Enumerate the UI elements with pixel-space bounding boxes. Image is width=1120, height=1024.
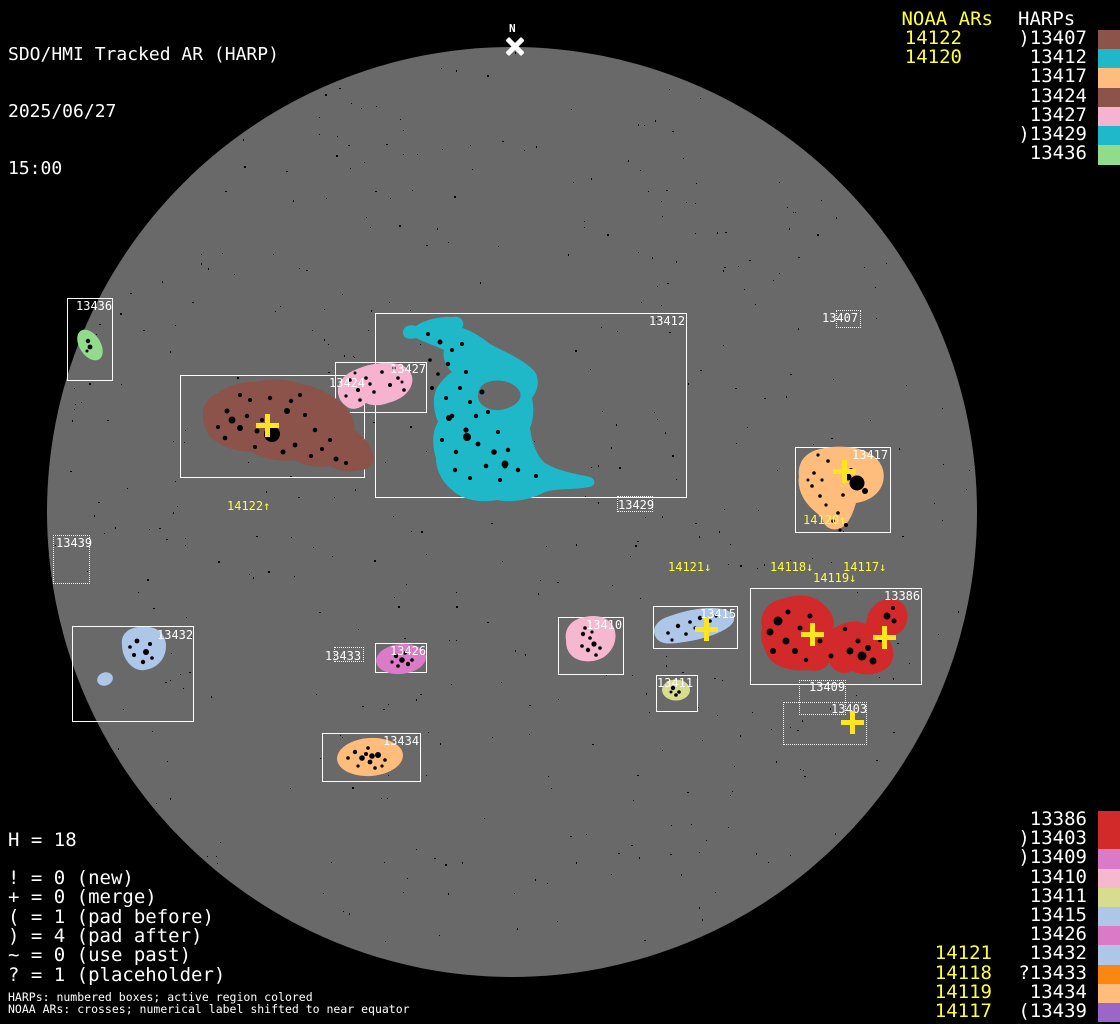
legend-harp-item: )13407 bbox=[1000, 29, 1087, 48]
legend-harp-item: 13436 bbox=[1000, 144, 1087, 163]
legend-color-swatch bbox=[1098, 869, 1120, 888]
legend-color-swatch bbox=[1098, 88, 1120, 107]
noaa-cross bbox=[833, 460, 856, 483]
legend-harp-item: 13410 bbox=[975, 868, 1087, 887]
legend-harp-item: 13424 bbox=[1000, 87, 1087, 106]
legend-harp-item: 13412 bbox=[1000, 48, 1087, 67]
stat-line: ( = 1 (pad before) bbox=[8, 908, 214, 927]
stat-line: ? = 1 (placeholder) bbox=[8, 966, 225, 985]
legend-harp-item: )13429 bbox=[1000, 125, 1087, 144]
legend-color-swatch bbox=[1098, 811, 1120, 830]
legend-harp-item: )13403 bbox=[975, 829, 1087, 848]
noaa-cross bbox=[801, 623, 824, 646]
legend-color-swatch bbox=[1098, 30, 1120, 49]
legend-harp-item: )13409 bbox=[975, 848, 1087, 867]
stat-line: + = 0 (merge) bbox=[8, 888, 157, 907]
legend-noaa-item: 14122 bbox=[880, 29, 962, 48]
noaa-cross bbox=[256, 414, 279, 437]
legend-harp-item: 13415 bbox=[975, 906, 1087, 925]
plot-title: SDO/HMI Tracked AR (HARP) bbox=[8, 45, 279, 64]
legend-harp-item: 13417 bbox=[1000, 67, 1087, 86]
plot-date: 2025/06/27 bbox=[8, 102, 279, 121]
legend-color-swatch bbox=[1098, 1003, 1120, 1022]
legend-harp-item: 13426 bbox=[975, 925, 1087, 944]
noaa-cross bbox=[695, 618, 718, 641]
legend-color-swatch bbox=[1098, 926, 1120, 945]
plot-header: SDO/HMI Tracked AR (HARP) 2025/06/27 15:… bbox=[8, 7, 279, 216]
legend-color-swatch bbox=[1098, 965, 1120, 984]
legend-color-swatch bbox=[1098, 830, 1120, 849]
legend-color-swatch bbox=[1098, 849, 1120, 868]
legend-harp-item: 13386 bbox=[975, 810, 1087, 829]
noaa-cross bbox=[873, 626, 896, 649]
legend-color-swatch bbox=[1098, 907, 1120, 926]
legend-harp-item: (13439 bbox=[975, 1002, 1087, 1021]
stat-line: ~ = 0 (use past) bbox=[8, 946, 191, 965]
legend-harp-item: 13427 bbox=[1000, 106, 1087, 125]
solar-harp-map: 1343613424134271341213429134071341713439… bbox=[0, 0, 1120, 1024]
legend-harp-item: 13411 bbox=[975, 887, 1087, 906]
north-label: N bbox=[509, 22, 516, 35]
north-marker: N bbox=[503, 22, 529, 56]
legend-color-swatch bbox=[1098, 945, 1120, 964]
legend-harp-item: 13432 bbox=[975, 944, 1087, 963]
legend-color-swatch bbox=[1098, 145, 1120, 164]
noaa-cross bbox=[841, 711, 864, 734]
footnote: NOAA ARs: crosses; numerical label shift… bbox=[8, 1003, 410, 1015]
legend-color-swatch bbox=[1098, 126, 1120, 145]
legend-noaa-item: 14120 bbox=[880, 48, 962, 67]
harp-count: H = 18 bbox=[8, 831, 77, 850]
stat-line: ) = 4 (pad after) bbox=[8, 927, 202, 946]
legend-harp-item: 13434 bbox=[975, 983, 1087, 1002]
north-cross-icon bbox=[504, 35, 526, 57]
plot-time: 15:00 bbox=[8, 159, 279, 178]
legend-color-swatch bbox=[1098, 984, 1120, 1003]
legend-color-swatch bbox=[1098, 68, 1120, 87]
legend-color-swatch bbox=[1098, 107, 1120, 126]
legend-color-swatch bbox=[1098, 888, 1120, 907]
stat-line: ! = 0 (new) bbox=[8, 869, 134, 888]
legend-harp-item: ?13433 bbox=[975, 964, 1087, 983]
legend-color-swatch bbox=[1098, 49, 1120, 68]
